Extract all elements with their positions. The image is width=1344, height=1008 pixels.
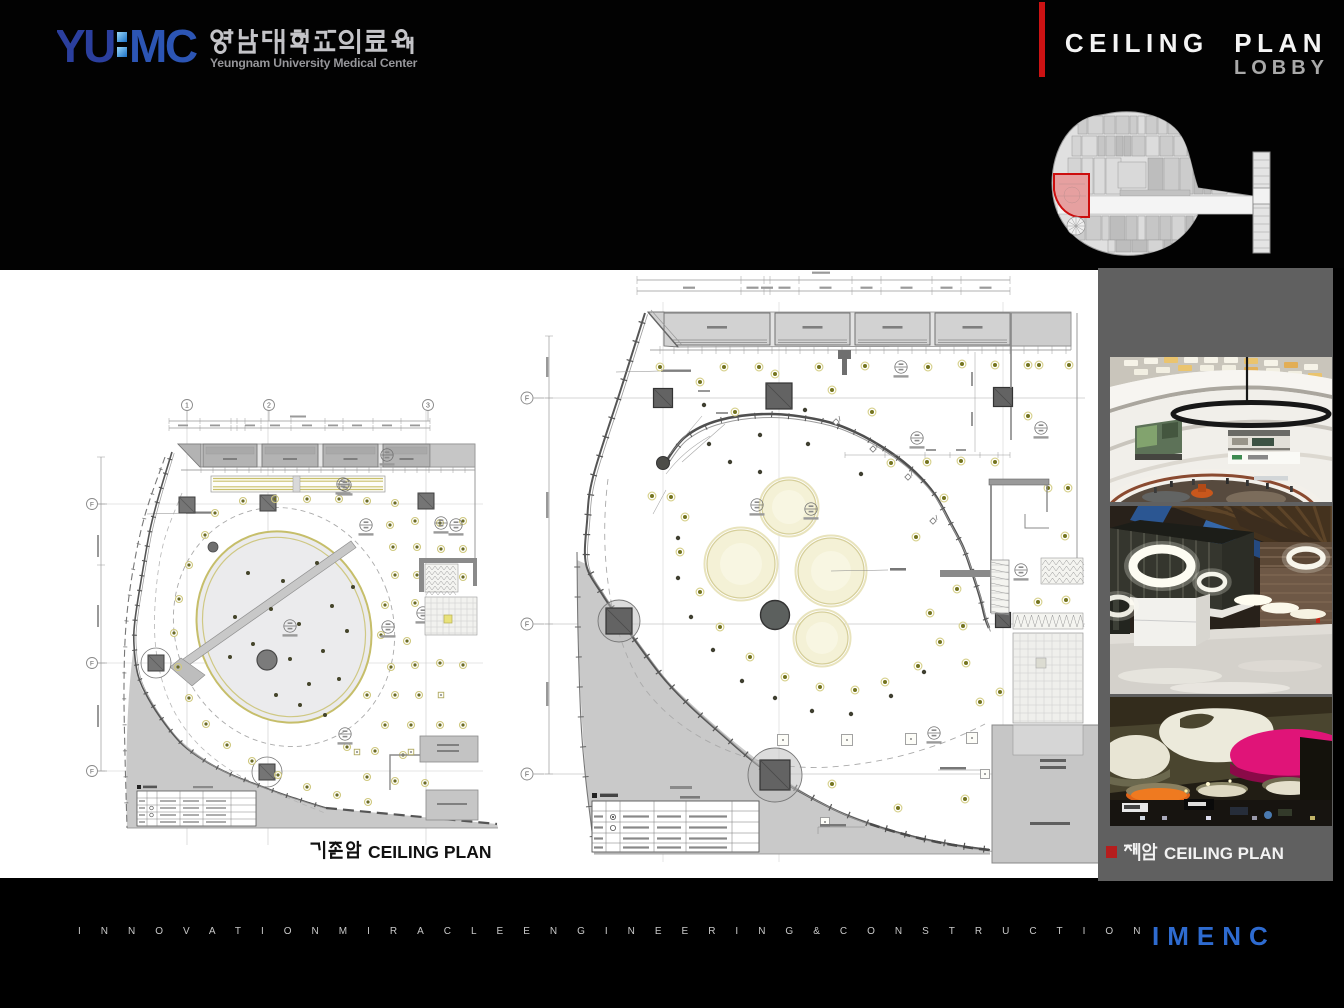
svg-text:F: F bbox=[525, 396, 529, 403]
svg-text:CEILING PLAN: CEILING PLAN bbox=[368, 842, 491, 862]
svg-text:F: F bbox=[525, 772, 529, 779]
svg-text:F: F bbox=[90, 502, 94, 509]
svg-text:F: F bbox=[90, 769, 94, 776]
svg-text:CEILING PLAN: CEILING PLAN bbox=[1164, 844, 1284, 863]
svg-text:3: 3 bbox=[426, 403, 430, 410]
svg-text:1: 1 bbox=[185, 403, 189, 410]
svg-text:F: F bbox=[525, 622, 529, 629]
svg-text:MC: MC bbox=[129, 23, 197, 69]
svg-text:2: 2 bbox=[267, 403, 271, 410]
svg-text:F: F bbox=[90, 661, 94, 668]
svg-text:YU: YU bbox=[57, 23, 114, 69]
svg-text:Yeungnam University Medical Ce: Yeungnam University Medical Center bbox=[210, 56, 418, 70]
